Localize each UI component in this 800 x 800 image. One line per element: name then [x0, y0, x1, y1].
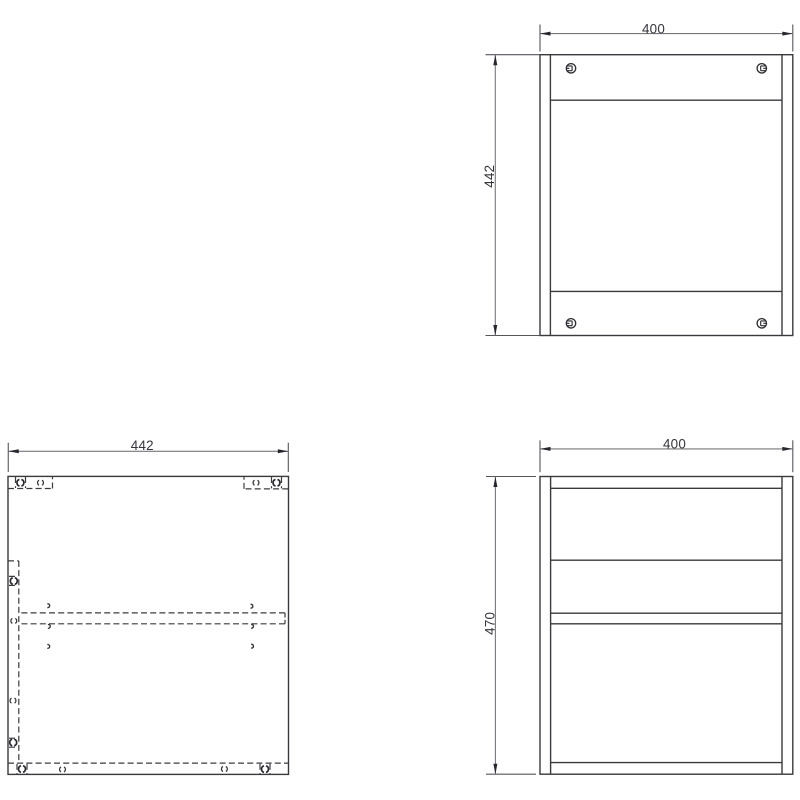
svg-text:470: 470: [482, 612, 497, 635]
svg-text:442: 442: [482, 165, 497, 188]
svg-text:400: 400: [642, 21, 665, 36]
svg-text:400: 400: [663, 436, 686, 451]
svg-text:442: 442: [131, 438, 154, 453]
